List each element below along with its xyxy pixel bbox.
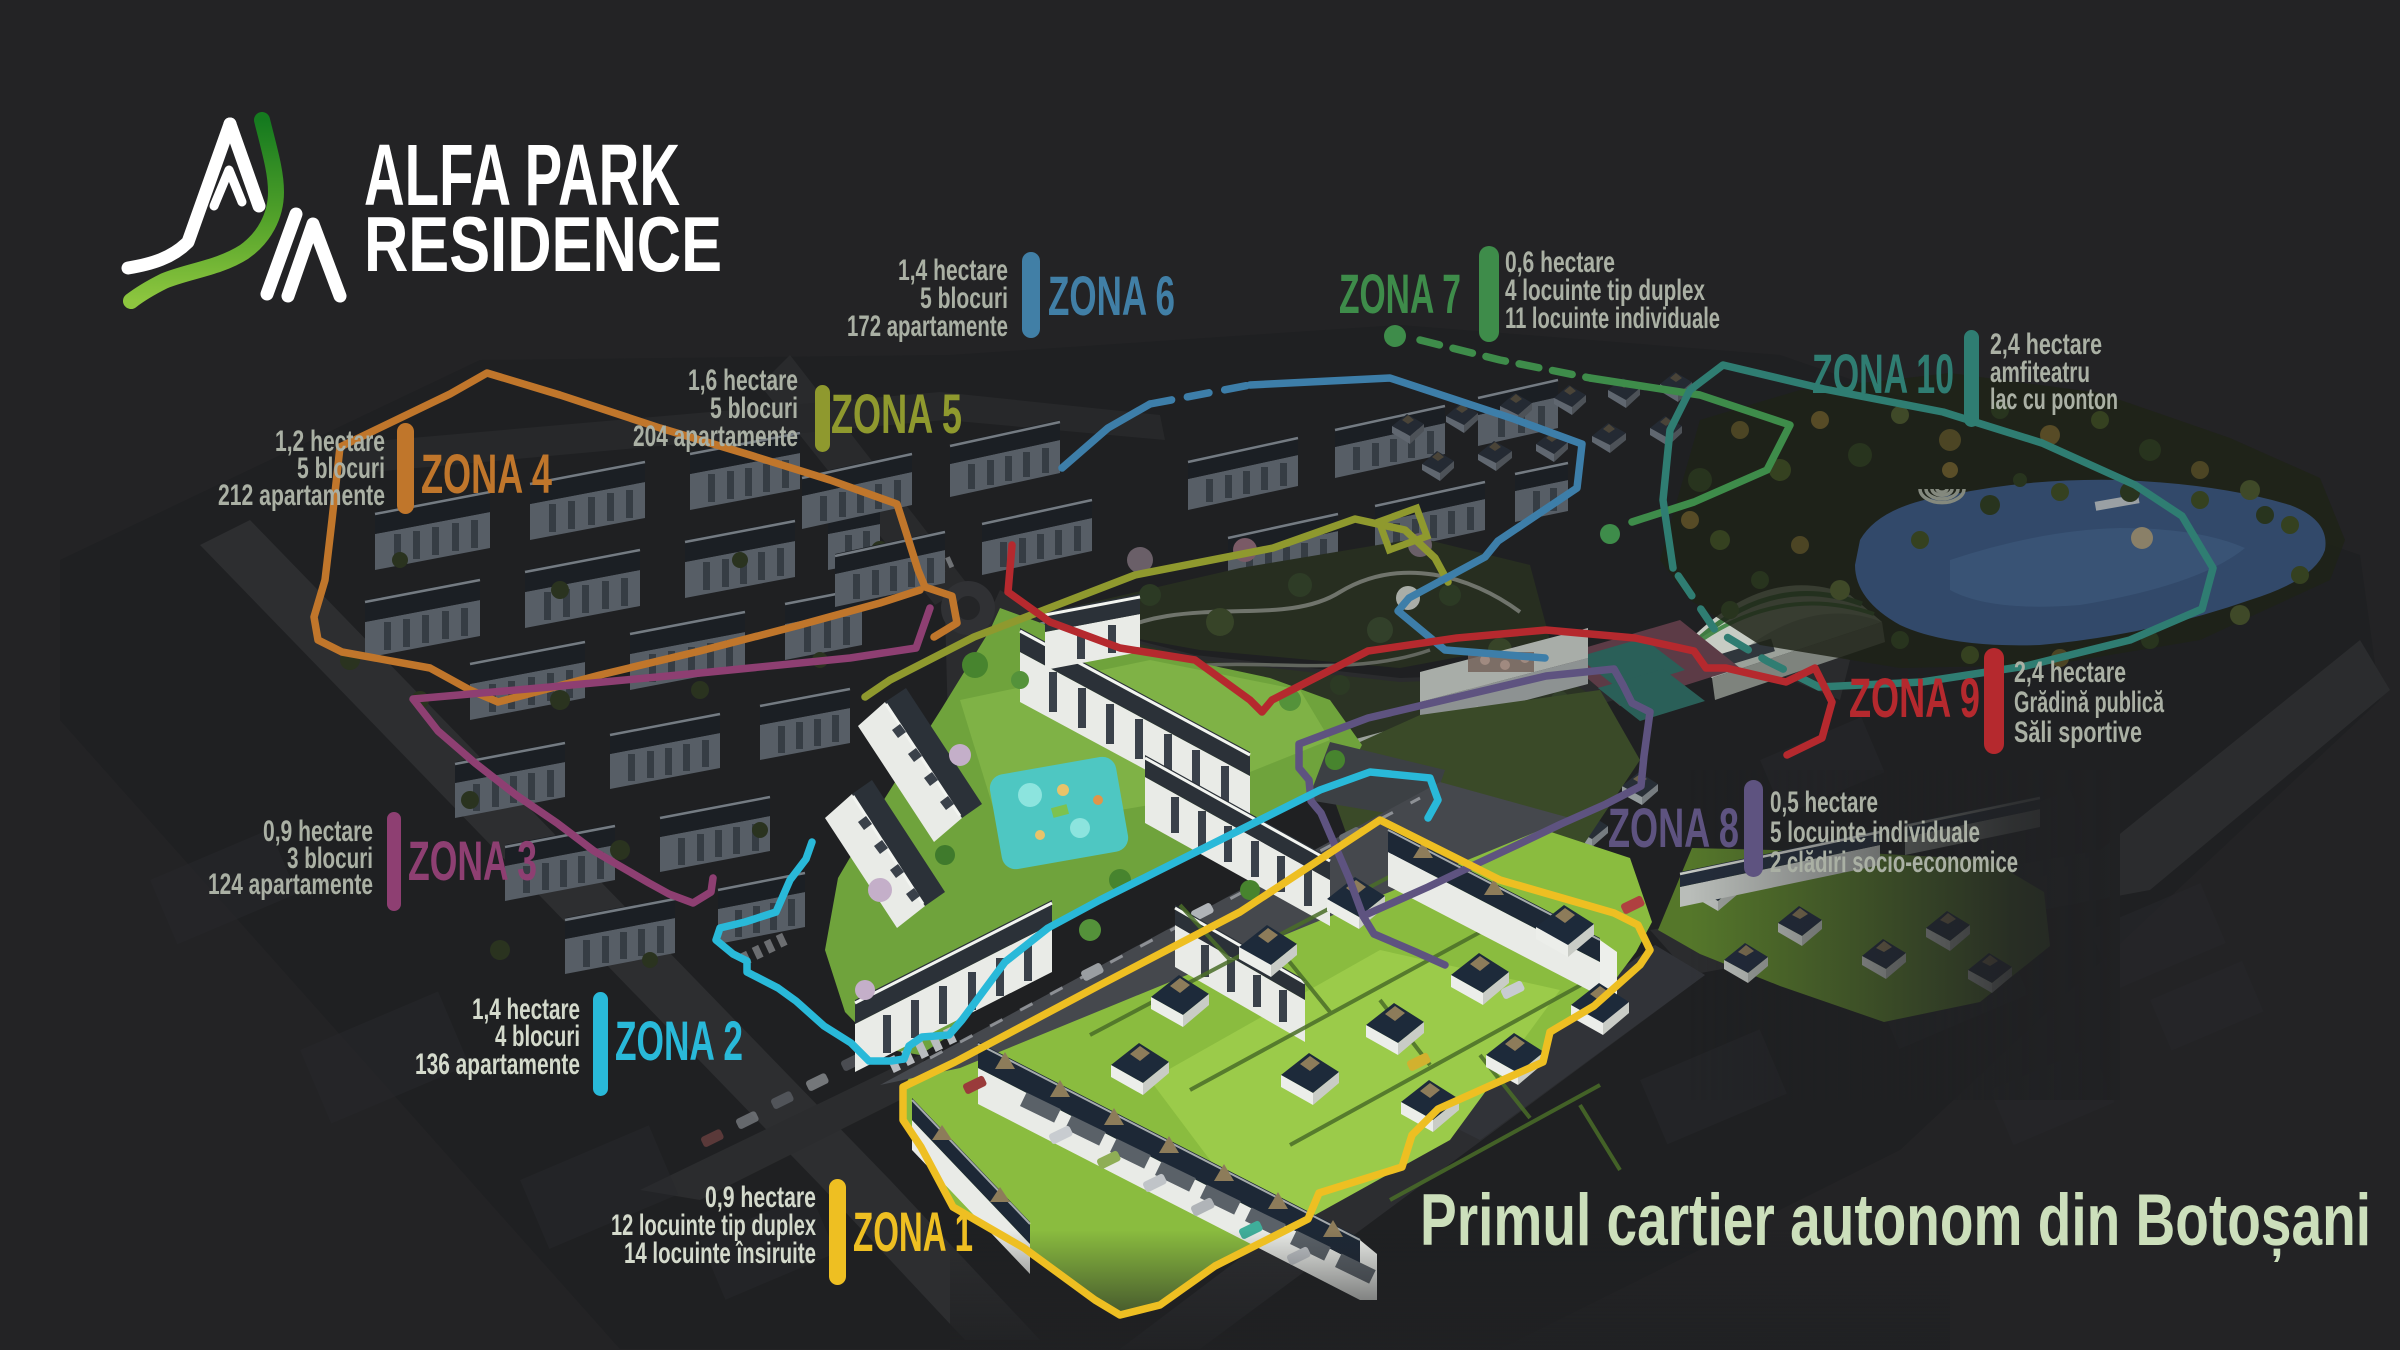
svg-text:Primul cartier autonom din Bot: Primul cartier autonom din Botoșani [1420,1180,2371,1262]
svg-text:212 apartamente: 212 apartamente [218,479,385,512]
svg-text:ZONA 9: ZONA 9 [1849,666,1980,729]
svg-text:136 apartamente: 136 apartamente [415,1048,580,1081]
svg-text:ZONA 2: ZONA 2 [615,1009,743,1072]
svg-text:ZONA 7: ZONA 7 [1339,262,1461,325]
svg-text:2,4 hectare: 2,4 hectare [2014,656,2126,689]
svg-text:ZONA 4: ZONA 4 [421,442,552,505]
svg-text:lac cu ponton: lac cu ponton [1990,383,2118,416]
svg-text:172 apartamente: 172 apartamente [847,310,1008,343]
svg-text:14 locuinte însiruite: 14 locuinte însiruite [624,1237,816,1270]
svg-text:124 apartamente: 124 apartamente [208,868,373,901]
svg-text:Săli sportive: Săli sportive [2014,716,2142,749]
svg-text:ZONA 10: ZONA 10 [1812,342,1954,405]
svg-text:11 locuinte individuale: 11 locuinte individuale [1505,302,1720,335]
svg-text:2 clădiri socio-economice: 2 clădiri socio-economice [1770,846,2018,879]
svg-text:5 locuinte individuale: 5 locuinte individuale [1770,816,1980,849]
svg-text:RESIDENCE: RESIDENCE [364,200,722,288]
svg-text:ZONA 8: ZONA 8 [1608,796,1739,859]
svg-text:204 apartamente: 204 apartamente [633,420,798,453]
svg-text:ZONA 1: ZONA 1 [853,1200,973,1263]
svg-text:Grădină publică: Grădină publică [2014,686,2164,719]
svg-text:ZONA 5: ZONA 5 [831,382,962,445]
svg-text:0,5 hectare: 0,5 hectare [1770,786,1878,819]
svg-text:ZONA 6: ZONA 6 [1048,264,1175,327]
svg-text:ZONA 3: ZONA 3 [408,829,537,892]
